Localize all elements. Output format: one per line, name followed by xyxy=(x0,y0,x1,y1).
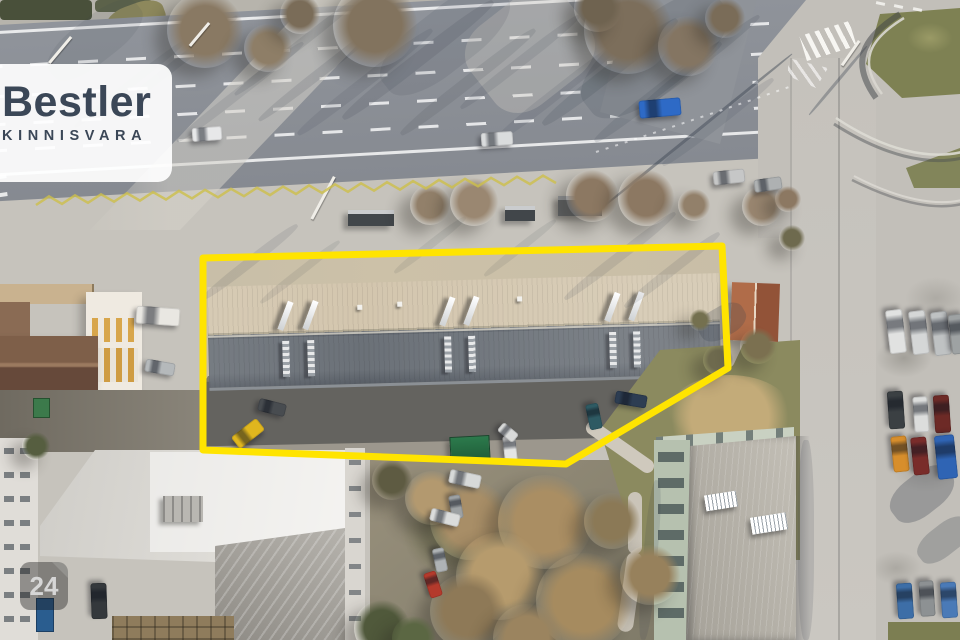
roof-vent-strip xyxy=(609,332,617,368)
roof-chimney xyxy=(439,296,455,326)
roof-vent-strip xyxy=(307,340,315,376)
pavement-joint xyxy=(838,58,840,640)
roof-vent xyxy=(357,305,362,310)
bus-shelter xyxy=(348,210,394,226)
roof-chimney xyxy=(277,301,293,331)
car xyxy=(712,168,745,185)
car xyxy=(144,358,176,376)
tree xyxy=(618,170,674,226)
building-shadow xyxy=(796,436,810,640)
road-marking xyxy=(0,192,8,198)
roof-chimney xyxy=(302,300,318,330)
car xyxy=(90,583,107,620)
kiosk-windows xyxy=(92,348,138,382)
street-kiosk xyxy=(558,196,602,216)
logo-panel: Bestler KINNISVARA xyxy=(0,64,172,182)
tree xyxy=(410,185,450,225)
aerial-photo: Bestler KINNISVARA 24 xyxy=(0,0,960,640)
copper-roof-kiosk xyxy=(730,282,780,342)
roof-chimney xyxy=(604,292,620,322)
brown-roof-building xyxy=(0,302,30,340)
roof-vent-strip xyxy=(282,341,290,377)
badge-text: 24 xyxy=(30,571,59,602)
industrial-roof-gray xyxy=(215,528,348,640)
tree xyxy=(678,189,710,221)
facade-windows xyxy=(4,448,14,636)
car xyxy=(135,305,180,326)
green-dumpster xyxy=(33,398,50,418)
flat-roof-building xyxy=(0,284,94,304)
logo-subtext: KINNISVARA xyxy=(2,128,172,144)
logo-text: Bestler xyxy=(2,80,172,125)
roof-vent-strip xyxy=(444,336,452,372)
green-building-roof xyxy=(686,436,796,640)
parking-lot xyxy=(876,238,960,640)
footpath xyxy=(628,492,642,554)
gabled-roof-house xyxy=(0,336,98,394)
tree xyxy=(450,178,498,226)
badge-24: 24 xyxy=(20,562,68,610)
roof-vent xyxy=(517,296,522,301)
kiosk-windows xyxy=(92,318,138,342)
roof-vent xyxy=(397,302,402,307)
roof-vent-strip xyxy=(468,336,476,372)
roof-vent-strip xyxy=(633,331,641,367)
roof-chimney xyxy=(463,296,479,326)
bus-shelter xyxy=(505,206,535,221)
grass-strip xyxy=(888,622,960,640)
facade-windows xyxy=(658,452,684,632)
pallet-stacks xyxy=(112,616,234,640)
green-container xyxy=(449,435,490,463)
roof-chimney xyxy=(628,291,644,321)
facade-windows xyxy=(349,460,361,636)
rooftop-units xyxy=(163,496,203,522)
hedge xyxy=(0,0,92,20)
